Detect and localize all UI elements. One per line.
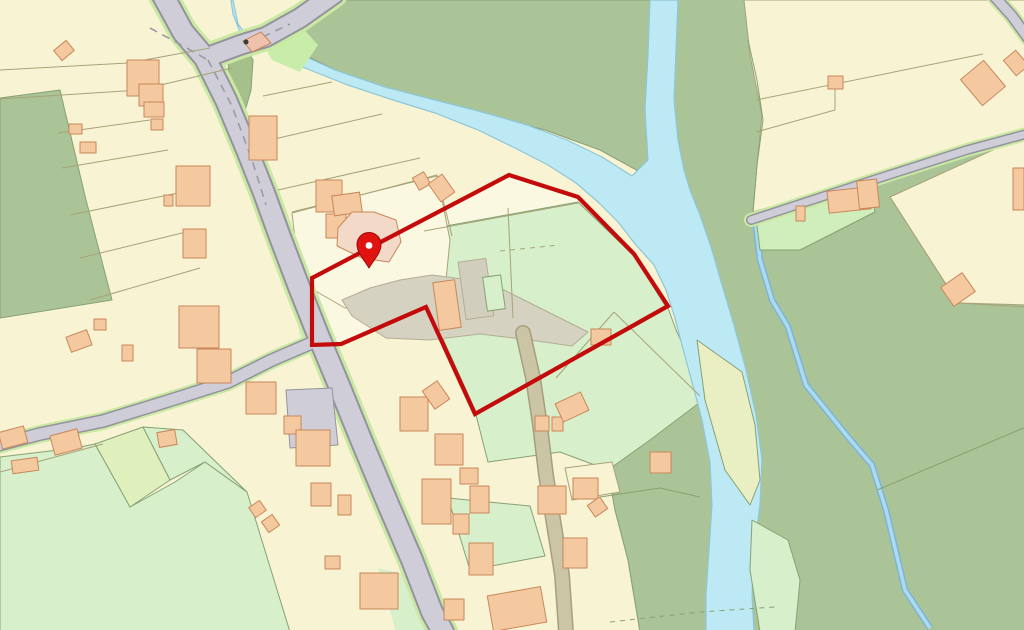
- bridge-marker-dot: [244, 40, 249, 45]
- building: [360, 573, 398, 609]
- building: [246, 382, 276, 414]
- building: [573, 478, 598, 499]
- building: [197, 349, 231, 383]
- map-canvas[interactable]: [0, 0, 1024, 630]
- building: [1013, 168, 1024, 210]
- building: [69, 124, 82, 134]
- building: [552, 417, 563, 431]
- property-location-map[interactable]: [0, 0, 1024, 630]
- building: [94, 319, 106, 330]
- building: [144, 102, 164, 117]
- building: [338, 495, 351, 515]
- building: [563, 538, 587, 568]
- building: [469, 543, 493, 575]
- building: [453, 514, 469, 534]
- building: [249, 116, 277, 160]
- building: [183, 229, 206, 258]
- building: [296, 430, 330, 466]
- building: [650, 452, 671, 473]
- building: [796, 206, 805, 221]
- building: [538, 486, 566, 514]
- building: [435, 434, 463, 465]
- building: [80, 142, 96, 153]
- building: [857, 179, 880, 209]
- building: [400, 397, 428, 431]
- building: [122, 345, 133, 361]
- building: [470, 486, 489, 513]
- building: [164, 195, 173, 206]
- building: [176, 166, 210, 206]
- building: [311, 483, 331, 506]
- building: [535, 416, 549, 431]
- building: [325, 556, 340, 569]
- building: [422, 479, 451, 524]
- building: [151, 119, 163, 130]
- building: [157, 430, 177, 448]
- building: [444, 599, 464, 620]
- building: [460, 468, 478, 484]
- building: [179, 306, 219, 348]
- building: [828, 76, 843, 89]
- location-pin-hole: [366, 242, 373, 249]
